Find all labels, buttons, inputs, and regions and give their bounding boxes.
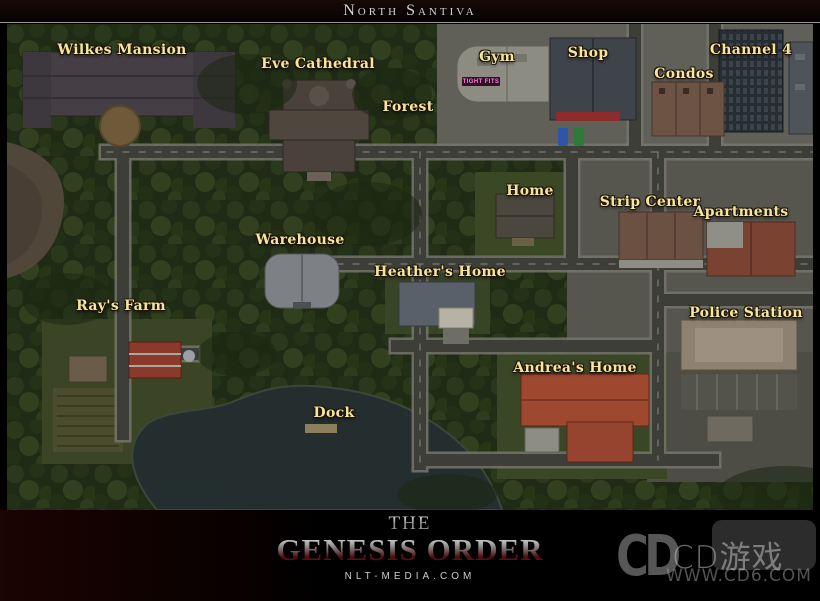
map-title: North Santiva [343, 2, 476, 20]
label-rays-farm: Ray's Farm [76, 298, 166, 314]
watermark-url: WWW.CD6.COM [666, 566, 812, 586]
apartments-building [707, 222, 795, 276]
home-building [496, 194, 554, 246]
screenshot-root: North Santiva [0, 0, 820, 601]
label-condos: Condos [654, 66, 713, 82]
game-logo-the: The [276, 514, 543, 534]
label-apartments: Apartments [694, 204, 789, 220]
label-home: Home [506, 183, 554, 199]
site-url: NLT-MEDIA.COM [276, 571, 543, 582]
label-andreas-home: Andrea's Home [513, 360, 636, 376]
condos-building [652, 82, 724, 136]
label-shop: Shop [568, 45, 609, 61]
label-dock: Dock [314, 405, 355, 421]
game-logo: The Genesis Order NLT-MEDIA.COM [276, 514, 543, 582]
map-viewport: Wilkes Mansion Eve Cathedral Forest Gym … [7, 24, 813, 510]
label-warehouse: Warehouse [255, 232, 344, 248]
game-logo-main: Genesis Order [276, 534, 543, 567]
label-channel-4: Channel 4 [710, 42, 792, 58]
label-gym: Gym [479, 49, 515, 65]
label-heathers-home: Heather's Home [374, 264, 506, 280]
label-forest: Forest [383, 99, 434, 115]
label-police-station: Police Station [689, 305, 803, 321]
gym-sign: TIGHT FITS [462, 77, 500, 86]
dock-plank [305, 424, 337, 433]
andreas-home-building [521, 374, 649, 462]
title-bar: North Santiva [0, 0, 820, 23]
label-wilkes-mansion: Wilkes Mansion [57, 42, 186, 58]
label-eve-cathedral: Eve Cathedral [261, 56, 375, 72]
warehouse-building [265, 254, 339, 308]
strip-center-building [619, 212, 703, 268]
label-strip-center: Strip Center [600, 194, 701, 210]
